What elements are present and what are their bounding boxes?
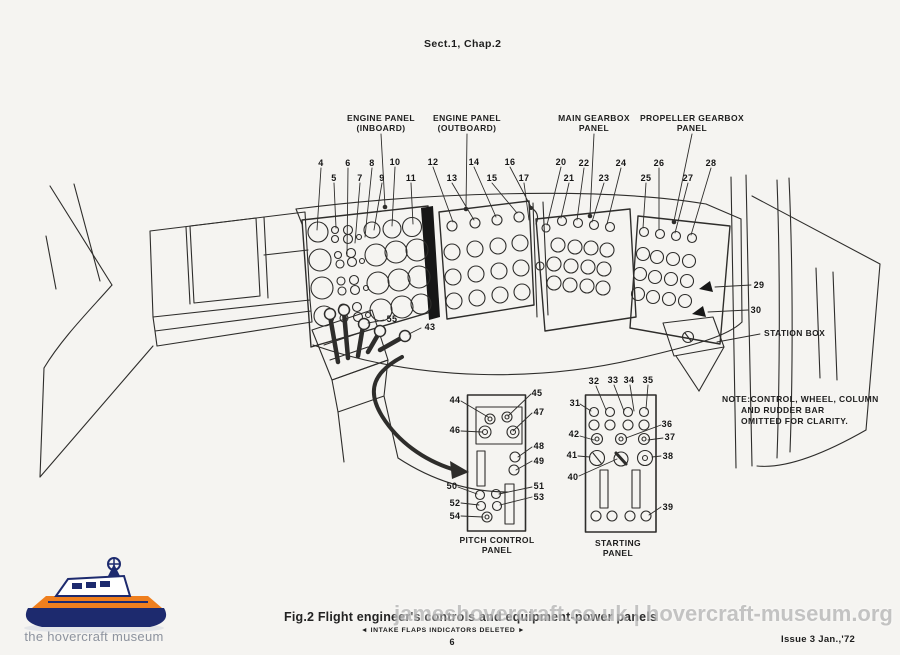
callout-7: 7: [357, 173, 362, 183]
throttle-levers: [325, 305, 411, 363]
callout-54: 54: [450, 511, 461, 521]
callout-28: 28: [706, 158, 717, 168]
scanned-manual-page: Sect.1, Chap.2 ENGINE PANEL (INBOARD) EN…: [0, 0, 900, 655]
callout-35: 35: [643, 375, 654, 385]
label-station-box: STATION BOX: [764, 328, 825, 339]
callout-21: 21: [564, 173, 575, 183]
figure-subcaption: ◄ INTAKE FLAPS INDICATORS DELETED ►: [361, 627, 525, 634]
engine-outboard-dials: [444, 212, 530, 309]
label-pitch-control-panel: PITCH CONTROL PANEL: [459, 536, 534, 555]
callout-52: 52: [450, 498, 461, 508]
issue-stamp: Issue 3 Jan.,'72: [781, 634, 855, 645]
callout-44: 44: [450, 395, 461, 405]
callout-36: 36: [662, 419, 673, 429]
callout-24: 24: [616, 158, 627, 168]
callout-40: 40: [568, 472, 579, 482]
label-starting-panel: STARTING PANEL: [595, 539, 641, 558]
callout-15: 15: [487, 173, 498, 183]
callout-14: 14: [469, 157, 480, 167]
callout-16: 16: [505, 157, 516, 167]
callout-26: 26: [654, 158, 665, 168]
callout-33: 33: [608, 375, 619, 385]
callout-8: 8: [369, 158, 374, 168]
left-window-structure: [40, 184, 312, 477]
callout-5: 5: [331, 173, 336, 183]
callout-38: 38: [663, 451, 674, 461]
starting-panel-shape: [586, 395, 657, 532]
callout-13: 13: [447, 173, 458, 183]
callout-25: 25: [641, 173, 652, 183]
callout-12: 12: [428, 157, 439, 167]
callout-41: 41: [567, 450, 578, 460]
note-block: NOTE:CONTROL, WHEEL, COLUMN AND RUDDER B…: [722, 394, 879, 427]
label-engine-outboard: ENGINE PANEL (OUTBOARD): [433, 114, 501, 133]
callout-32: 32: [589, 376, 600, 386]
page-number: 6: [449, 637, 454, 647]
callout-30: 30: [751, 305, 762, 315]
hovercraft-logo-art: [12, 556, 172, 634]
callout-27: 27: [683, 173, 694, 183]
callout-55: 55: [387, 314, 398, 324]
propeller-gearbox-dials: [632, 228, 697, 308]
callout-6: 6: [345, 158, 350, 168]
callout-10: 10: [390, 157, 401, 167]
callout-29: 29: [754, 280, 765, 290]
callout-42: 42: [569, 429, 580, 439]
callout-45: 45: [532, 388, 543, 398]
callout-31: 31: [570, 398, 581, 408]
callout-22: 22: [579, 158, 590, 168]
pitch-control-panel-shape: [468, 395, 526, 531]
callout-39: 39: [663, 502, 674, 512]
section-header: Sect.1, Chap.2: [424, 38, 501, 50]
callout-50: 50: [447, 481, 458, 491]
station-box-shape: [663, 317, 724, 391]
callout-47: 47: [534, 407, 545, 417]
label-engine-inboard: ENGINE PANEL (INBOARD): [347, 114, 415, 133]
label-main-gearbox: MAIN GEARBOX PANEL: [558, 114, 630, 133]
callout-11: 11: [406, 173, 416, 183]
label-propeller-gearbox: PROPELLER GEARBOX PANEL: [640, 114, 744, 133]
main-gearbox-dials: [536, 217, 615, 296]
callout-49: 49: [534, 456, 545, 466]
callout-23: 23: [599, 173, 610, 183]
logo-text: the hovercraft museum: [14, 629, 174, 644]
callout-17: 17: [519, 173, 530, 183]
callout-53: 53: [534, 492, 545, 502]
callout-48: 48: [534, 441, 545, 451]
callout-4: 4: [318, 158, 323, 168]
routing-arrow: [374, 357, 469, 479]
callout-43: 43: [425, 322, 436, 332]
callout-37: 37: [665, 432, 676, 442]
callout-20: 20: [556, 157, 567, 167]
callout-46: 46: [450, 425, 461, 435]
callout-34: 34: [624, 375, 635, 385]
logo-skirt: [26, 608, 166, 627]
callout-9: 9: [379, 173, 384, 183]
watermark: jameshovercraft.co.uk | hovercraft-museu…: [394, 601, 893, 627]
callout-51: 51: [534, 481, 545, 491]
